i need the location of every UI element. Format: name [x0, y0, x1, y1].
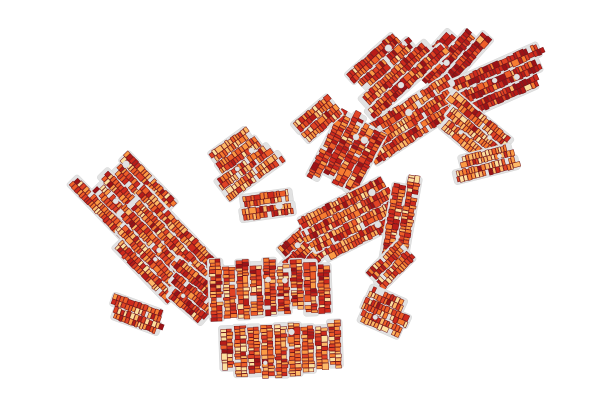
parcel	[243, 295, 248, 299]
parcel	[305, 277, 310, 281]
parcel	[329, 344, 335, 347]
parcel	[303, 368, 309, 372]
parcel	[281, 337, 286, 340]
parcel	[269, 270, 275, 273]
parcel	[256, 276, 261, 280]
parcel	[285, 209, 288, 215]
parcel	[263, 367, 268, 371]
parcel	[290, 368, 296, 370]
parcel	[297, 288, 302, 290]
parcel	[242, 259, 248, 262]
parcel	[262, 371, 268, 374]
parcel	[220, 341, 227, 345]
parcel	[241, 363, 247, 367]
parcel	[267, 344, 272, 347]
parcel	[303, 338, 308, 341]
parcel	[295, 368, 301, 370]
parcel	[263, 258, 269, 262]
parcel	[292, 271, 297, 274]
parcel	[248, 366, 254, 369]
parcel	[211, 318, 217, 322]
parcel	[284, 293, 289, 296]
parcel	[302, 342, 308, 346]
parcel	[238, 295, 243, 299]
parcel	[385, 235, 391, 240]
parcel	[254, 355, 260, 358]
parcel	[267, 341, 272, 344]
parcel	[211, 300, 216, 303]
parcel	[223, 275, 229, 278]
parcel	[263, 206, 267, 212]
parcel	[334, 326, 339, 330]
parcel	[260, 329, 266, 333]
parcel	[270, 290, 276, 294]
parcel	[240, 328, 245, 331]
parcel	[267, 338, 272, 341]
parcel	[235, 335, 240, 339]
parcel	[311, 296, 316, 301]
parcel	[309, 368, 314, 372]
parcel	[294, 335, 300, 339]
parcel	[249, 369, 255, 373]
parcel	[244, 299, 249, 305]
parcel	[244, 202, 247, 207]
parcel	[284, 287, 290, 290]
parcel	[230, 296, 236, 298]
parcel	[253, 213, 257, 220]
parcel	[277, 273, 283, 276]
parcel	[237, 374, 242, 376]
parcel	[275, 342, 281, 345]
parcel	[262, 339, 267, 342]
parcel	[250, 201, 254, 207]
parcel	[211, 315, 216, 318]
parcel	[224, 270, 229, 274]
parcel	[308, 346, 314, 349]
parcel	[262, 343, 268, 346]
parcel	[268, 363, 273, 365]
parcel-choropleth-map	[0, 0, 600, 400]
parcel	[267, 328, 273, 331]
parcel	[253, 330, 259, 334]
parcel	[311, 307, 316, 310]
parcel	[282, 362, 289, 365]
parcel	[324, 280, 330, 284]
parcel	[210, 287, 216, 291]
parcel	[278, 210, 282, 216]
parcel	[291, 268, 296, 271]
parcel	[250, 266, 256, 270]
parcel	[238, 284, 243, 288]
parcel	[237, 277, 242, 281]
parcel	[237, 291, 244, 295]
parcel	[209, 259, 215, 263]
parcel	[279, 191, 285, 197]
parcel	[294, 342, 300, 345]
parcel	[329, 330, 335, 332]
parcel	[261, 346, 267, 349]
parcel	[385, 224, 392, 230]
parcel	[227, 336, 233, 339]
parcel	[408, 178, 415, 183]
parcel	[284, 307, 289, 310]
parcel	[248, 359, 254, 363]
parcel	[241, 356, 247, 359]
parcel	[283, 273, 288, 276]
parcel	[243, 215, 247, 221]
parcel	[335, 330, 341, 334]
parcel	[264, 300, 270, 306]
parcel	[249, 344, 254, 347]
parcel	[282, 365, 288, 368]
parcel	[403, 206, 410, 211]
parcel	[322, 359, 328, 363]
parcel	[267, 325, 272, 328]
parcel	[268, 347, 274, 349]
parcel	[240, 343, 246, 346]
parcel	[227, 358, 232, 361]
parcel	[223, 298, 229, 301]
parcel	[392, 224, 399, 231]
parcel	[238, 310, 244, 314]
parcel	[229, 278, 234, 281]
parcel	[329, 332, 334, 336]
parcel	[296, 259, 301, 263]
parcel	[298, 298, 304, 301]
parcel	[227, 332, 233, 335]
parcel	[235, 347, 241, 351]
parcel	[275, 332, 281, 335]
parcel	[297, 291, 303, 294]
parcel	[289, 357, 295, 361]
parcel	[211, 298, 216, 300]
parcel	[257, 298, 263, 301]
parcel	[319, 300, 325, 304]
parcel	[241, 359, 247, 363]
parcel	[281, 351, 286, 355]
parcel	[236, 265, 242, 268]
parcel	[236, 268, 242, 271]
parcel	[309, 364, 315, 368]
parcel	[227, 346, 233, 349]
parcel	[335, 347, 340, 351]
parcel	[241, 367, 247, 371]
cul-de-sac	[282, 278, 288, 284]
parcel	[322, 346, 328, 350]
parcel	[257, 286, 262, 289]
parcel	[328, 323, 334, 327]
parcel	[260, 212, 264, 218]
parcel	[292, 296, 297, 299]
parcel	[291, 281, 297, 284]
parcel	[243, 291, 249, 295]
parcel	[321, 331, 327, 335]
parcel	[243, 283, 248, 287]
parcel	[217, 314, 222, 318]
parcel	[271, 306, 276, 311]
parcel	[234, 344, 240, 347]
parcel	[322, 355, 327, 359]
parcel	[235, 340, 241, 344]
map-figure	[0, 0, 600, 400]
parcel	[259, 206, 263, 212]
parcel	[298, 306, 304, 310]
parcel	[264, 266, 270, 269]
parcel	[256, 208, 260, 214]
parcel	[294, 327, 300, 334]
parcel	[270, 297, 275, 300]
parcel	[324, 295, 330, 298]
parcel	[276, 191, 279, 197]
parcel	[290, 208, 293, 214]
parcel	[255, 366, 260, 368]
parcel	[268, 355, 274, 359]
parcel	[254, 200, 258, 206]
parcel	[406, 226, 411, 229]
parcel	[251, 302, 257, 304]
parcel	[215, 270, 221, 275]
parcel	[240, 326, 246, 328]
parcel	[305, 287, 311, 290]
parcel	[275, 338, 280, 341]
parcel	[388, 209, 395, 214]
parcel	[308, 343, 314, 346]
parcel	[256, 213, 260, 220]
parcel	[238, 271, 243, 274]
parcel	[329, 337, 335, 341]
parcel	[250, 270, 256, 273]
parcel	[249, 363, 254, 366]
parcel	[317, 363, 322, 365]
parcel	[236, 367, 241, 371]
parcel	[319, 280, 324, 283]
parcel	[238, 300, 243, 304]
parcel	[262, 333, 267, 336]
parcel	[225, 300, 230, 303]
parcel	[334, 323, 340, 326]
parcel	[321, 336, 327, 343]
parcel	[230, 289, 236, 297]
parcel	[211, 277, 216, 280]
parcel	[265, 295, 270, 299]
parcel	[222, 349, 227, 352]
parcel	[224, 282, 229, 284]
parcel	[275, 349, 281, 353]
parcel	[284, 204, 287, 210]
parcel	[254, 342, 260, 345]
parcel	[216, 294, 221, 297]
parcel	[235, 354, 241, 357]
parcel	[310, 279, 316, 282]
parcel	[241, 371, 246, 374]
parcel	[237, 274, 242, 276]
parcel	[210, 284, 216, 287]
parcel	[315, 334, 321, 337]
parcel	[223, 284, 229, 287]
parcel	[284, 300, 290, 304]
cul-de-sac	[263, 361, 267, 365]
parcel	[281, 359, 287, 362]
parcel	[404, 233, 411, 238]
parcel	[291, 290, 297, 292]
parcel	[255, 362, 261, 366]
parcel	[315, 337, 321, 341]
parcel	[406, 192, 412, 196]
parcel	[330, 362, 335, 365]
parcel	[323, 266, 329, 270]
parcel	[257, 305, 262, 309]
parcel	[284, 304, 289, 307]
parcel	[262, 355, 268, 359]
parcel	[238, 314, 244, 318]
parcel	[222, 267, 228, 270]
parcel	[242, 266, 248, 270]
parcel	[221, 333, 227, 337]
parcel	[278, 267, 283, 270]
parcel	[254, 351, 260, 355]
parcel	[302, 354, 308, 357]
parcel	[277, 270, 283, 272]
parcel	[304, 281, 310, 285]
parcel	[311, 304, 317, 307]
parcel	[276, 375, 282, 378]
parcel	[251, 195, 254, 200]
parcel	[309, 361, 315, 363]
parcel	[269, 260, 275, 263]
parcel	[270, 294, 276, 296]
parcel	[319, 293, 324, 296]
parcel	[254, 359, 260, 362]
parcel	[308, 349, 313, 353]
parcel	[228, 361, 234, 364]
parcel	[268, 192, 274, 199]
parcel	[278, 299, 284, 303]
parcel	[278, 309, 284, 311]
parcel	[335, 337, 340, 339]
parcel	[304, 285, 311, 287]
parcel	[304, 273, 310, 277]
parcel	[294, 339, 300, 341]
subdivision-center-loop	[236, 187, 297, 223]
parcel	[311, 293, 318, 296]
parcel	[384, 239, 390, 243]
parcel	[289, 371, 295, 374]
parcel	[316, 357, 322, 360]
parcel	[281, 347, 287, 350]
parcel	[290, 264, 296, 268]
parcel	[399, 185, 406, 190]
parcel	[324, 273, 330, 277]
parcel	[308, 339, 313, 343]
parcel	[270, 273, 275, 276]
parcel	[249, 351, 254, 354]
parcel	[269, 262, 275, 265]
parcel	[297, 270, 303, 273]
parcel	[221, 345, 227, 349]
parcel	[224, 315, 230, 318]
parcel	[230, 310, 236, 313]
parcel	[216, 289, 221, 292]
parcel	[242, 209, 246, 215]
parcel	[250, 293, 256, 296]
parcel	[335, 351, 340, 353]
parcel	[399, 232, 405, 237]
parcel	[222, 363, 227, 370]
parcel	[317, 360, 322, 363]
parcel	[311, 301, 316, 304]
parcel	[335, 358, 341, 361]
parcel	[283, 283, 288, 287]
parcel	[235, 371, 241, 374]
parcel	[267, 331, 273, 338]
parcel	[316, 327, 321, 330]
parcel	[281, 341, 286, 347]
parcel	[212, 307, 217, 311]
parcel	[263, 375, 269, 379]
parcel	[237, 281, 243, 284]
parcel	[241, 346, 247, 351]
parcel	[216, 285, 221, 289]
parcel	[336, 362, 341, 365]
parcel	[407, 188, 413, 192]
parcel	[308, 353, 313, 357]
parcel	[288, 209, 291, 214]
parcel	[330, 351, 335, 353]
parcel	[274, 192, 277, 198]
parcel	[290, 278, 296, 281]
parcel	[325, 298, 331, 302]
parcel	[209, 267, 215, 270]
parcel	[319, 287, 324, 290]
parcel	[278, 283, 283, 286]
parcel	[290, 364, 295, 368]
parcel	[276, 368, 282, 372]
parcel	[308, 357, 313, 361]
parcel	[294, 323, 300, 327]
parcel	[247, 214, 250, 220]
parcel	[230, 285, 235, 288]
parcel	[257, 292, 262, 295]
parcel	[224, 304, 230, 307]
parcel	[318, 269, 323, 273]
parcel	[244, 306, 250, 309]
parcel	[307, 326, 312, 329]
parcel	[257, 296, 263, 299]
parcel	[305, 305, 311, 309]
parcel	[316, 350, 321, 353]
parcel	[270, 283, 275, 286]
parcel	[330, 354, 336, 357]
parcel	[319, 296, 325, 300]
parcel	[265, 288, 270, 292]
parcel	[229, 267, 235, 270]
parcel	[324, 270, 331, 273]
parcel	[210, 292, 216, 295]
parcel	[315, 341, 321, 345]
parcel	[260, 199, 264, 204]
parcel	[276, 360, 281, 363]
parcel	[277, 372, 282, 375]
parcel	[242, 262, 248, 265]
parcel	[279, 290, 284, 293]
parcel	[231, 314, 238, 318]
parcel	[330, 341, 335, 344]
parcel	[235, 330, 240, 333]
parcel	[240, 335, 246, 338]
parcel	[271, 304, 276, 306]
parcel	[460, 161, 467, 168]
parcel	[298, 302, 304, 306]
